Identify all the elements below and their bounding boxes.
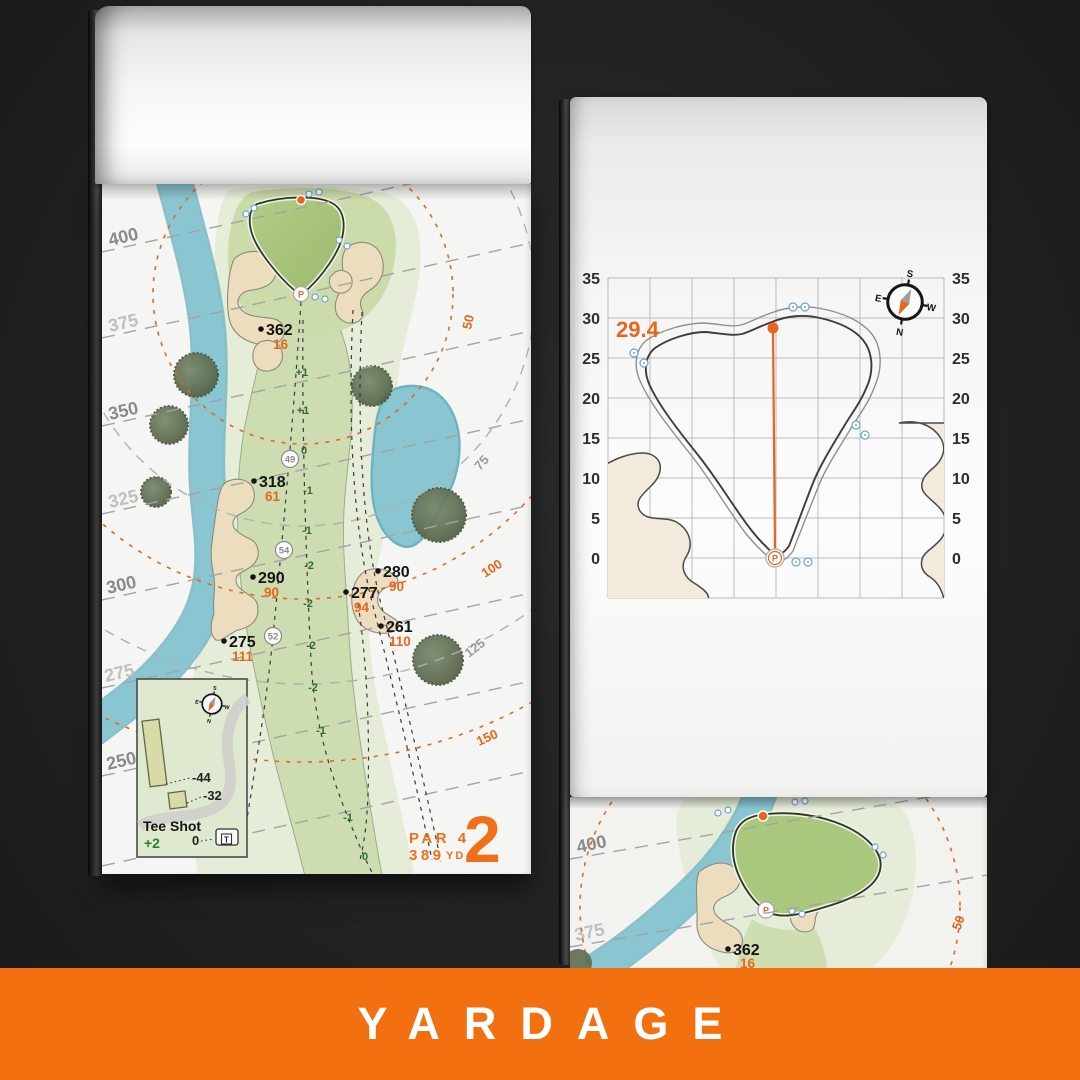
green-chart-page: 35 30 25 20 15 10 5 0 35 30 25 20 15 10 … — [570, 97, 987, 797]
svg-text:52: 52 — [268, 632, 279, 643]
slope-label: -1 — [343, 812, 353, 824]
tree-icon — [352, 366, 392, 406]
right-yardage-book: 35 30 25 20 15 10 5 0 35 30 25 20 15 10 … — [559, 95, 989, 968]
slope-label: 0 — [301, 445, 307, 457]
pin-label: P — [298, 290, 304, 300]
svg-text:90: 90 — [264, 585, 279, 600]
right-axis-labels: 35 30 25 20 15 10 5 0 — [952, 271, 970, 568]
river — [102, 184, 213, 732]
tee-mark-44: -44 — [192, 770, 212, 785]
flag-position-dot — [758, 811, 768, 821]
arc-label-100: 100 — [478, 556, 504, 580]
svg-text:30: 30 — [952, 311, 970, 328]
green-depth-chart: 35 30 25 20 15 10 5 0 35 30 25 20 15 10 … — [570, 97, 987, 797]
sprinkler-marker-52: 52 — [265, 628, 282, 645]
svg-text:61: 61 — [265, 489, 281, 504]
tree-icon — [174, 353, 218, 397]
svg-text:111: 111 — [232, 649, 254, 664]
svg-text:T: T — [224, 836, 229, 845]
next-page-map: P 400 375 50 362 16 — [570, 797, 987, 968]
slope-label: -2 — [304, 560, 314, 572]
tee-line-label-400: 400 — [106, 224, 140, 250]
tree-icon — [412, 488, 466, 542]
arc-label-75: 75 — [471, 452, 492, 473]
svg-text:94: 94 — [354, 600, 370, 615]
par-label: PAR 4 — [409, 830, 470, 847]
left-book-flipped-page-back — [95, 6, 531, 184]
hole-map-page: 400 375 350 325 300 275 250 50 75 100 12… — [102, 184, 531, 874]
svg-text:20: 20 — [582, 391, 600, 408]
chart-pin-label: P — [772, 554, 778, 564]
arc-label-50: 50 — [949, 913, 968, 932]
slope-label: +1 — [297, 405, 310, 417]
chart-bunkers — [590, 422, 970, 599]
slope-label: -1 — [303, 485, 313, 497]
tee-line-label-250: 250 — [104, 748, 138, 774]
svg-text:25: 25 — [582, 351, 600, 368]
tee-line-label-325: 325 — [106, 486, 140, 512]
yardage-label: 389 — [409, 847, 445, 864]
svg-text:5: 5 — [591, 511, 600, 528]
slope-label: -1 — [302, 525, 312, 537]
pin-marker: P — [294, 287, 309, 302]
svg-text:0: 0 — [952, 551, 961, 568]
svg-text:P: P — [763, 906, 769, 916]
yardage-banner: YARDAGE — [0, 968, 1080, 1080]
green-depth-value: 29.4 — [616, 317, 660, 342]
pin-marker: P — [758, 902, 774, 918]
svg-text:0: 0 — [591, 551, 600, 568]
svg-text:30: 30 — [582, 311, 600, 328]
svg-text:10: 10 — [582, 471, 600, 488]
tee-line-label-300: 300 — [104, 572, 138, 598]
svg-text:35: 35 — [952, 271, 970, 288]
arc-label-50: 50 — [459, 313, 477, 330]
svg-text:90: 90 — [389, 579, 404, 594]
hole-info: PAR 4 389 YD 2 — [409, 802, 501, 874]
tee-mark-32: -32 — [203, 788, 222, 803]
svg-text:20: 20 — [952, 391, 970, 408]
svg-text:5: 5 — [952, 511, 961, 528]
svg-text:15: 15 — [582, 431, 600, 448]
svg-text:10: 10 — [952, 471, 970, 488]
tree-icon — [570, 949, 592, 968]
slope-label: 0 — [362, 851, 368, 863]
bunker-fairway-left — [211, 479, 258, 640]
svg-text:16: 16 — [273, 337, 289, 352]
svg-text:16: 16 — [740, 956, 756, 968]
left-axis-labels: 35 30 25 20 15 10 5 0 — [582, 271, 600, 568]
svg-text:49: 49 — [285, 455, 296, 466]
chart-compass — [869, 264, 943, 344]
svg-text:25: 25 — [952, 351, 970, 368]
tee-box-small — [168, 791, 187, 809]
tee-marker-icon: T — [216, 829, 238, 845]
depth-measure-line — [768, 323, 779, 550]
tee-line-label-375: 375 — [106, 310, 140, 336]
slope-label: +1 — [296, 367, 309, 379]
svg-text:15: 15 — [952, 431, 970, 448]
yardage-unit-label: YD — [446, 850, 465, 862]
sprinkler-marker-54: 54 — [276, 542, 293, 559]
hole-map: 400 375 350 325 300 275 250 50 75 100 12… — [102, 184, 531, 874]
tee-mark-0: 0 — [192, 833, 199, 848]
tee-shot-inset: -44 -32 Tee Shot +2 0 T — [137, 679, 248, 857]
hole-number: 2 — [464, 802, 501, 874]
inset-title: Tee Shot — [143, 818, 201, 834]
depth-top-dot — [768, 323, 779, 334]
arc-label-150: 150 — [474, 726, 500, 749]
next-hole-map-page: P 400 375 50 362 16 — [570, 797, 987, 968]
tee-line-label-350: 350 — [106, 398, 140, 424]
svg-text:54: 54 — [279, 546, 290, 557]
yardage-banner-title: YARDAGE — [334, 968, 747, 1080]
slope-label: -2 — [306, 640, 316, 652]
svg-text:110: 110 — [389, 634, 411, 649]
chart-pin-marker: P — [766, 549, 784, 567]
slope-label: -2 — [303, 598, 313, 610]
slope-label: -2 — [308, 682, 318, 694]
bunker-green-right-small — [329, 270, 352, 293]
left-yardage-book: 400 375 350 325 300 275 250 50 75 100 12… — [88, 6, 534, 882]
svg-text:35: 35 — [582, 271, 600, 288]
slope-label: -1 — [316, 725, 326, 737]
sprinkler-marker-49: 49 — [282, 451, 299, 468]
flag-position-dot — [297, 196, 306, 205]
tee-shot-value: +2 — [144, 835, 160, 851]
